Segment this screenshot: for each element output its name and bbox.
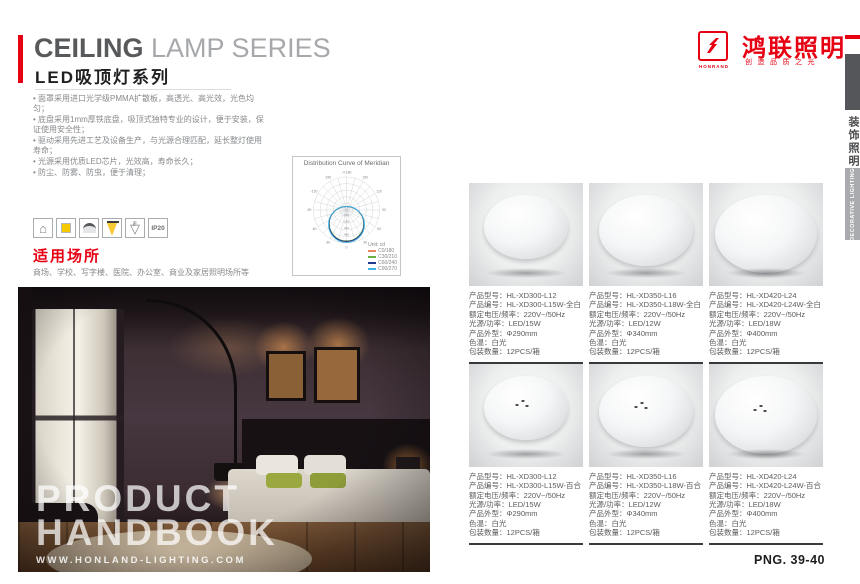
tab-dark-block [845, 54, 860, 110]
spec-packing: 包装数量：12PCS/箱 [709, 347, 823, 356]
spec-voltage: 额定电压/频率：220V~/50Hz [589, 310, 703, 319]
usage-text: 商场、学校、写字楼、医院、办公室、商业及家居照明场所等 [33, 267, 293, 278]
spec-code: 产品编号：HL-XD300-L15W-百合 [469, 481, 583, 490]
spec-packing: 包装数量：12PCS/箱 [709, 528, 823, 537]
svg-text:-150: -150 [324, 176, 331, 180]
spec-model: 产品型号：HL-XD300-L12 [469, 472, 583, 481]
product-photo [709, 183, 823, 286]
spec-code: 产品编号：HL-XD350-L18W-全白 [589, 300, 703, 309]
series-title-en-bold: CEILING [34, 33, 144, 63]
spec-code: 产品编号：HL-XD420-L24W-全白 [709, 300, 823, 309]
usage-title: 适用场所 [33, 245, 101, 266]
spec-power: 光源/功率：LED/18W [709, 319, 823, 328]
spec-model: 产品型号：HL-XD350-L16 [589, 472, 703, 481]
light-beam-icon [102, 218, 122, 238]
ceiling-lamp-dome [715, 376, 817, 454]
product-specs: 产品型号：HL-XD350-L16产品编号：HL-XD350-L18W-百合额定… [589, 472, 703, 538]
ceiling-lamp-dome [484, 195, 568, 259]
spec-model: 产品型号：HL-XD300-L12 [469, 291, 583, 300]
svg-text:400: 400 [344, 233, 349, 237]
spec-size: 产品外型：Φ340mm [589, 329, 703, 338]
product-photo [469, 364, 583, 467]
product-card: 产品型号：HL-XD300-L12产品编号：HL-XD300-L15W-全白额定… [469, 183, 583, 364]
spec-voltage: 额定电压/频率：220V~/50Hz [709, 491, 823, 500]
spec-model: 产品型号：HL-XD350-L16 [589, 291, 703, 300]
spec-size: 产品外型：Φ400mm [709, 509, 823, 518]
card-divider [589, 543, 703, 545]
spec-voltage: 额定电压/频率：220V~/50Hz [709, 310, 823, 319]
brand-logo-abbr: HONRAND [694, 64, 734, 69]
tab-category-en: DECORATIVE LIGHTING [850, 168, 856, 240]
svg-text:30: 30 [363, 241, 367, 245]
product-card: 产品型号：HL-XD350-L16产品编号：HL-XD350-L18W-全白额定… [589, 183, 703, 364]
overlay-line1: PRODUCT [36, 482, 278, 516]
lightning-h-icon [703, 36, 723, 56]
product-photo [589, 364, 703, 467]
house-icon: ⌂ [33, 218, 53, 238]
svg-text:320: 320 [344, 226, 349, 230]
spec-size: 产品外型：Φ340mm [589, 509, 703, 518]
product-photo [709, 364, 823, 467]
ip-rating-badge: IP20 [148, 218, 168, 238]
product-specs: 产品型号：HL-XD300-L12产品编号：HL-XD300-L15W-全白额定… [469, 291, 583, 357]
feature-item: 底盘采用1mm厚铁底盘，吸顶式独特专业的设计，便于安装，保证使用安全性； [33, 115, 265, 135]
series-title-en: CEILING LAMP SERIES [34, 33, 331, 64]
title-accent-bar [18, 35, 23, 83]
product-specs: 产品型号：HL-XD420-L24产品编号：HL-XD420-L24W-百合额定… [709, 472, 823, 538]
svg-text:240: 240 [344, 219, 349, 223]
chart-title: Distribution Curve of Meridian [293, 160, 400, 167]
spec-code: 产品编号：HL-XD300-L15W-全白 [469, 300, 583, 309]
tab-category-cn: 装饰照明 [845, 113, 860, 171]
certification-icons: ⌂ ▽F IP20 [33, 218, 168, 238]
bedroom-photo: PRODUCT HANDBOOK WWW.HONLAND-LIGHTING.CO… [18, 287, 430, 572]
ceiling-lamp-dome [484, 376, 568, 440]
overlay-line2: HANDBOOK [36, 516, 278, 550]
brand-slogan: 创造品质之光 [745, 57, 820, 67]
product-grid: 产品型号：HL-XD300-L12产品编号：HL-XD300-L15W-全白额定… [469, 183, 823, 545]
spec-cct: 色温：白光 [709, 519, 823, 528]
svg-text:-90: -90 [307, 208, 312, 212]
spec-cct: 色温：白光 [589, 519, 703, 528]
svg-text:60: 60 [377, 227, 381, 231]
tab-red-dash [845, 35, 860, 39]
tab-gray-block: DECORATIVE LIGHTING [845, 168, 860, 240]
spec-packing: 包装数量：12PCS/箱 [589, 528, 703, 537]
overlay-website: WWW.HONLAND-LIGHTING.COM [36, 555, 278, 566]
spec-power: 光源/功率：LED/12W [589, 319, 703, 328]
ceiling-lamp-dome [715, 195, 817, 273]
svg-text:-60: -60 [312, 227, 317, 231]
svg-text:160: 160 [344, 213, 349, 217]
spec-voltage: 额定电压/频率：220V~/50Hz [469, 310, 583, 319]
spec-code: 产品编号：HL-XD420-L24W-百合 [709, 481, 823, 490]
ceiling-lamp-dome [599, 195, 693, 266]
photo-overlay-text: PRODUCT HANDBOOK WWW.HONLAND-LIGHTING.CO… [36, 482, 278, 566]
spec-model: 产品型号：HL-XD420-L24 [709, 472, 823, 481]
card-divider [469, 543, 583, 545]
product-card: 产品型号：HL-XD420-L24产品编号：HL-XD420-L24W-百合额定… [709, 364, 823, 545]
page-number: PNG. 39-40 [733, 553, 825, 567]
product-specs: 产品型号：HL-XD350-L16产品编号：HL-XD350-L18W-全白额定… [589, 291, 703, 357]
led-chip-icon [56, 218, 76, 238]
product-specs: 产品型号：HL-XD420-L24产品编号：HL-XD420-L24W-全白额定… [709, 291, 823, 357]
legend-item: C90/270 [368, 266, 397, 272]
spec-voltage: 额定电压/频率：220V~/50Hz [589, 491, 703, 500]
spec-size: 产品外型：Φ290mm [469, 509, 583, 518]
card-divider [709, 543, 823, 545]
product-photo [469, 183, 583, 286]
feature-item: 驱动采用先进工艺及设备生产，与光源合理匹配，延长整灯使用寿命； [33, 136, 265, 156]
title-underline [35, 89, 231, 90]
product-photo [589, 183, 703, 286]
ceiling-lamp-icon [79, 218, 99, 238]
chart-legend: Unit: cdC0/180C30/210C60/240C90/270 [368, 242, 397, 272]
svg-text:-/+180: -/+180 [342, 171, 352, 175]
honrand-logo-icon [698, 31, 728, 61]
spec-code: 产品编号：HL-XD350-L18W-百合 [589, 481, 703, 490]
feature-list: 面罩采用进口光学级PMMA扩散板，高透光、高光效，光色均匀；底盘采用1mm厚铁底… [33, 94, 265, 179]
svg-text:-120: -120 [311, 189, 318, 193]
svg-text:150: 150 [362, 176, 368, 180]
product-specs: 产品型号：HL-XD300-L12产品编号：HL-XD300-L15W-百合额定… [469, 472, 583, 538]
svg-text:90: 90 [382, 208, 386, 212]
svg-text:0: 0 [346, 246, 348, 250]
spec-packing: 包装数量：12PCS/箱 [469, 347, 583, 356]
feature-item: 光源采用优质LED芯片，光效高，寿命长久； [33, 157, 265, 167]
spec-model: 产品型号：HL-XD420-L24 [709, 291, 823, 300]
spec-voltage: 额定电压/频率：220V~/50Hz [469, 491, 583, 500]
spec-packing: 包装数量：12PCS/箱 [589, 347, 703, 356]
ceiling-lamp-dome [599, 376, 693, 447]
spec-packing: 包装数量：12PCS/箱 [469, 528, 583, 537]
product-card: 产品型号：HL-XD300-L12产品编号：HL-XD300-L15W-百合额定… [469, 364, 583, 545]
f-mark-icon: ▽F [125, 218, 145, 238]
product-card: 产品型号：HL-XD420-L24产品编号：HL-XD420-L24W-全白额定… [709, 183, 823, 364]
feature-item: 防尘、防雾、防虫，便于清理； [33, 168, 265, 178]
spec-cct: 色温：白光 [469, 519, 583, 528]
spec-size: 产品外型：Φ290mm [469, 329, 583, 338]
spec-power: 光源/功率：LED/15W [469, 319, 583, 328]
feature-item: 面罩采用进口光学级PMMA扩散板，高透光、高光效，光色均匀； [33, 94, 265, 114]
series-title-cn: LED吸顶灯系列 [35, 63, 170, 88]
distribution-curve-chart: Distribution Curve of Meridian 030609012… [292, 156, 401, 276]
svg-text:120: 120 [376, 189, 382, 193]
svg-text:-30: -30 [325, 241, 330, 245]
series-title-en-light: LAMP SERIES [144, 33, 331, 63]
product-card: 产品型号：HL-XD350-L16产品编号：HL-XD350-L18W-百合额定… [589, 364, 703, 545]
spec-size: 产品外型：Φ400mm [709, 329, 823, 338]
